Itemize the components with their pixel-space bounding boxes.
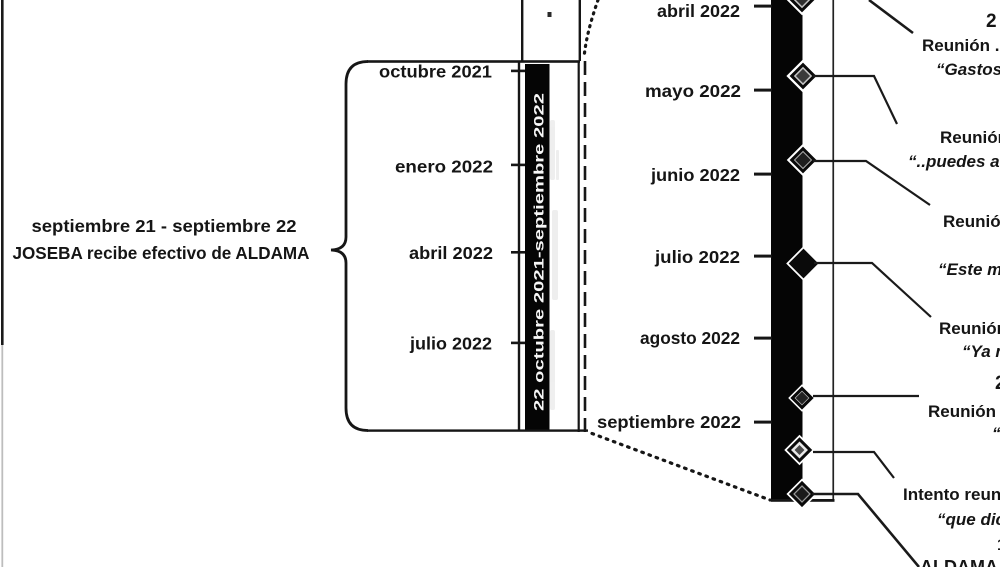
svg-text:“que dic: “que dic	[937, 510, 1000, 529]
svg-text:julio 2022: julio 2022	[654, 247, 740, 267]
svg-text:“: “	[992, 424, 1000, 443]
svg-text:septiembre 21 - septiembre 22: septiembre 21 - septiembre 22	[32, 216, 297, 236]
svg-text:JOSEBA recibe efectivo de ALDA: JOSEBA recibe efectivo de ALDAMA	[13, 243, 310, 263]
svg-text:Reunión .: Reunión .	[922, 36, 999, 55]
svg-text:agosto 2022: agosto 2022	[640, 328, 740, 348]
svg-text:enero 2022: enero 2022	[395, 157, 493, 177]
svg-text:ALDAMA: ALDAMA	[920, 557, 998, 567]
svg-text:abril 2022: abril 2022	[657, 1, 740, 21]
svg-text:octubre 2021: octubre 2021	[379, 62, 492, 82]
svg-text:2: 2	[995, 373, 1000, 394]
svg-text:septiembre 2022: septiembre 2022	[597, 412, 741, 432]
svg-text:“Ya m: “Ya m	[962, 342, 1000, 361]
svg-text:mayo 2022: mayo 2022	[645, 81, 741, 101]
svg-text:“Este me: “Este me	[938, 260, 1000, 279]
svg-text:Reunión: Reunión	[928, 402, 996, 421]
svg-text:julio 2022: julio 2022	[409, 334, 492, 354]
svg-text:Reunión: Reunión	[939, 319, 1000, 338]
svg-text:junio 2022: junio 2022	[650, 165, 740, 185]
svg-text:2: 2	[986, 11, 997, 32]
svg-text:“..puedes a: “..puedes a	[908, 152, 1000, 171]
svg-text:“Gastos: “Gastos	[936, 60, 1000, 79]
svg-text:Reunión: Reunión	[943, 212, 1000, 231]
svg-text:Reunión: Reunión	[940, 128, 1000, 147]
svg-text:22 octubre 2021-septiembre 202: 22 octubre 2021-septiembre 2022	[531, 93, 547, 411]
svg-text:Intento reun: Intento reun	[903, 485, 1000, 504]
svg-text:abril 2022: abril 2022	[409, 243, 493, 263]
